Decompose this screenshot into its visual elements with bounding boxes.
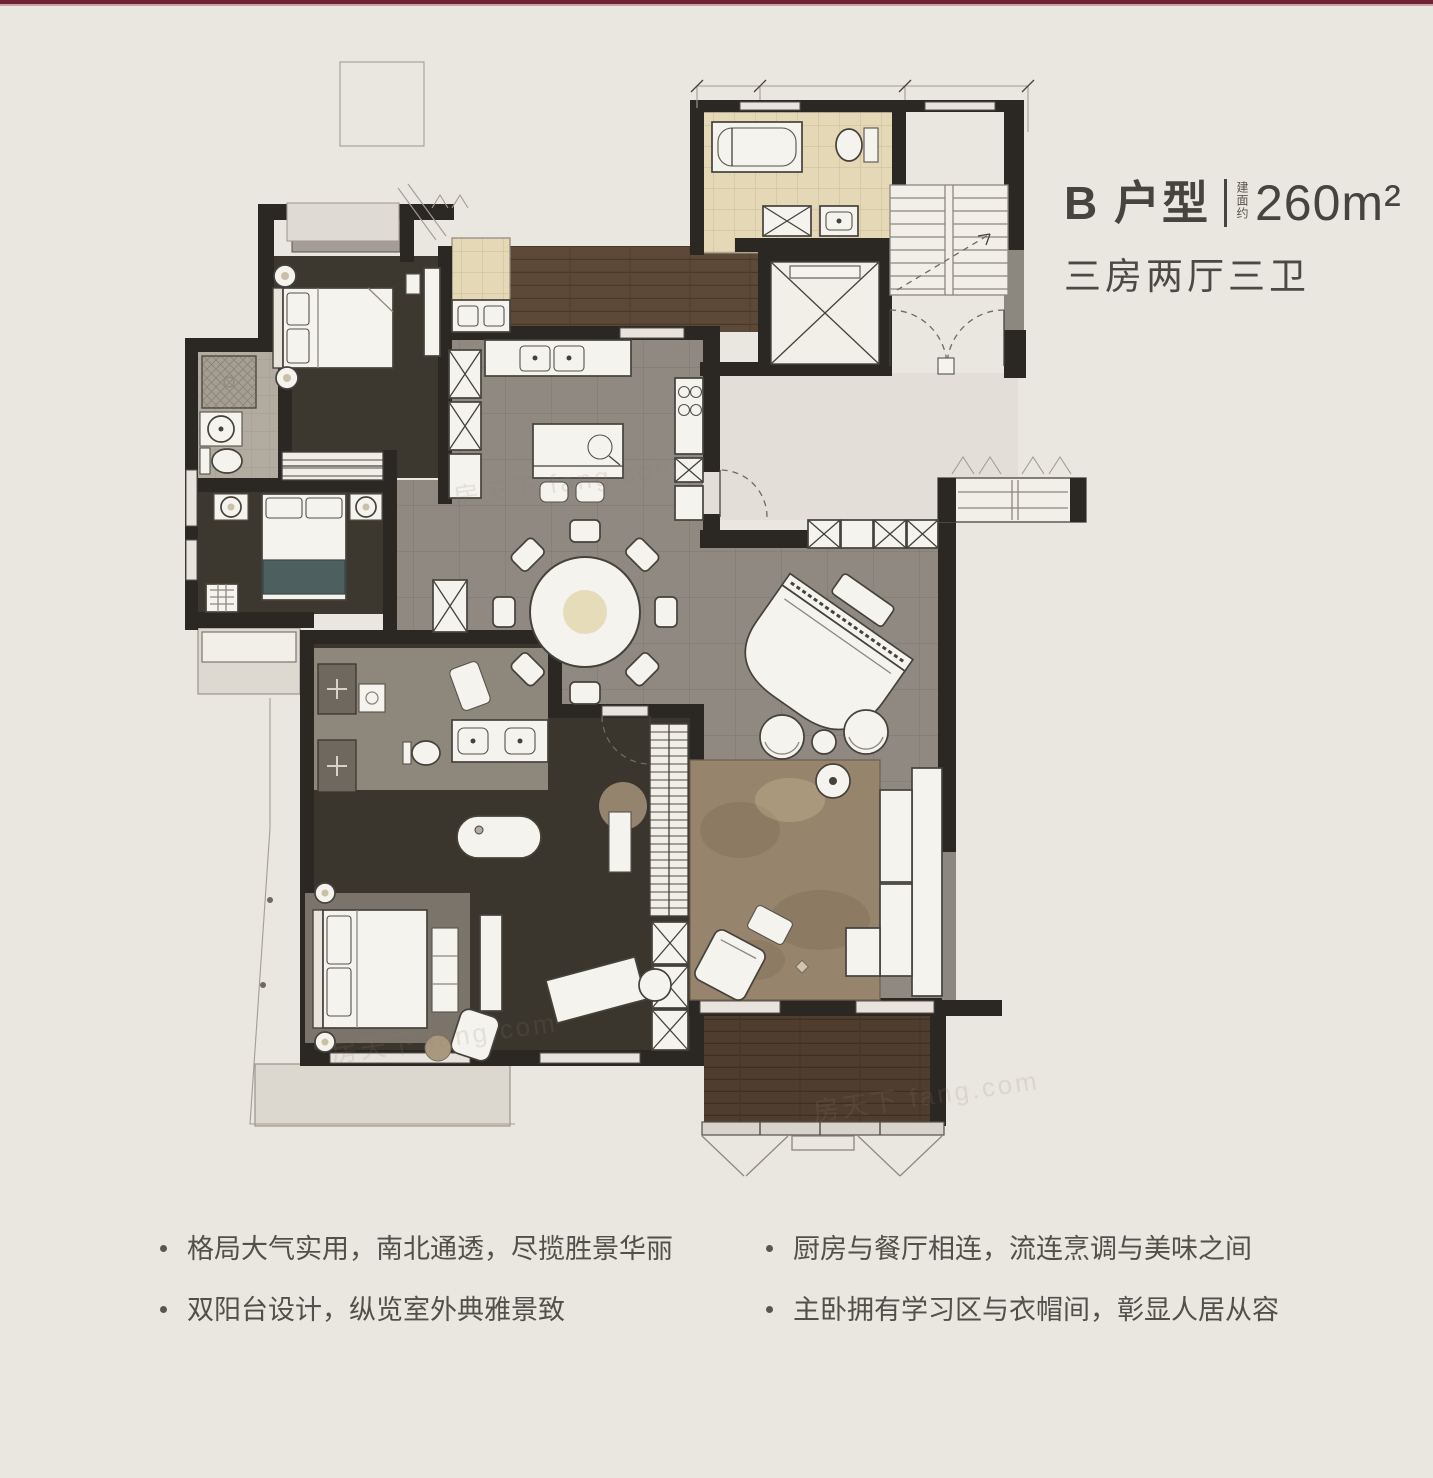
southwest-balcony-floor [255, 1064, 510, 1126]
feature-column-right: 厨房与餐厅相连，流连烹调与美味之间 主卧拥有学习区与衣帽间，彰显人居从容 [766, 1232, 1279, 1354]
west-balcony-ledge [202, 632, 296, 662]
feature-text: 主卧拥有学习区与衣帽间，彰显人居从容 [793, 1293, 1279, 1327]
pantry-sink [452, 300, 510, 332]
feature-list: 格局大气实用，南北通透，尽揽胜景华丽 双阳台设计，纵览室外典雅景致 厨房与餐厅相… [160, 1232, 1393, 1354]
side-table [812, 730, 836, 754]
bullet-dot-icon [766, 1306, 773, 1313]
master-bathtub [457, 816, 541, 858]
master-bed [313, 910, 427, 1028]
feature-item: 主卧拥有学习区与衣帽间，彰显人居从容 [766, 1293, 1279, 1327]
bedroom2-bed [262, 494, 346, 600]
bullet-dot-icon [160, 1245, 167, 1252]
kitchen-counter-top [485, 340, 631, 376]
shaft-box [763, 206, 811, 236]
guest-sink [200, 412, 242, 446]
curtain-mark [1022, 457, 1071, 474]
entry-door [890, 310, 1004, 374]
area-value: 260m² [1255, 178, 1402, 228]
stool [540, 482, 568, 502]
room-count-label: 三房两厅三卫 [1064, 246, 1424, 300]
feature-text: 厨房与餐厅相连，流连烹调与美味之间 [793, 1232, 1252, 1266]
kitchen-cabinets-left [449, 350, 481, 498]
public-toilet [836, 128, 878, 162]
shower [202, 356, 256, 408]
balcony-door-swings [702, 1136, 942, 1176]
desk-chair [639, 969, 671, 1001]
feature-text: 格局大气实用，南北通透，尽揽胜景华丽 [187, 1232, 673, 1266]
title-block: B 户型 建面约 260m² 三房两厅三卫 [1064, 178, 1424, 300]
feature-item: 厨房与餐厅相连，流连烹调与美味之间 [766, 1232, 1279, 1266]
elevator [758, 250, 892, 376]
armchair [760, 715, 804, 759]
tv-console [480, 915, 502, 1011]
living-bay-window [938, 478, 1086, 522]
kitchen-counter-right [675, 378, 703, 520]
feature-column-left: 格局大气实用，南北通透，尽揽胜景华丽 双阳台设计，纵览室外典雅景致 [160, 1232, 766, 1354]
feature-item: 双阳台设计，纵览室外典雅景致 [160, 1293, 766, 1327]
bullet-dot-icon [160, 1306, 167, 1313]
foyer-cabinets [808, 520, 938, 548]
south-balcony-floor [704, 1016, 944, 1122]
feature-item: 格局大气实用，南北通透，尽揽胜景华丽 [160, 1232, 766, 1266]
master-bidet [359, 684, 385, 712]
door-mat [609, 812, 631, 872]
stool [576, 482, 604, 502]
bed-bench [432, 928, 458, 1012]
unit-type-label: B 户型 [1064, 180, 1210, 226]
master-toilet [403, 741, 440, 765]
pouf [425, 1035, 451, 1061]
bedroom1-dresser [424, 268, 440, 356]
guest-toilet [200, 448, 242, 474]
pantry-floor [452, 238, 510, 300]
dining-cabinet [433, 580, 467, 632]
master-vanity [452, 720, 548, 762]
bullet-dot-icon [766, 1245, 773, 1252]
coffee-table [816, 764, 850, 798]
page: .wall{fill:#2b2823;} .furn{fill:#f5f3ed;… [0, 0, 1433, 1478]
staircase [890, 185, 1008, 295]
public-bathtub [712, 122, 802, 172]
title-divider [1224, 179, 1227, 227]
feature-text: 双阳台设计，纵览室外典雅景致 [187, 1293, 565, 1327]
washer [206, 584, 238, 612]
area-prefix-label: 建面约 [1236, 181, 1248, 225]
balcony-window-band [702, 1122, 944, 1135]
armchair [844, 710, 888, 754]
bedroom1-bed [273, 288, 393, 368]
public-sink [820, 206, 858, 236]
